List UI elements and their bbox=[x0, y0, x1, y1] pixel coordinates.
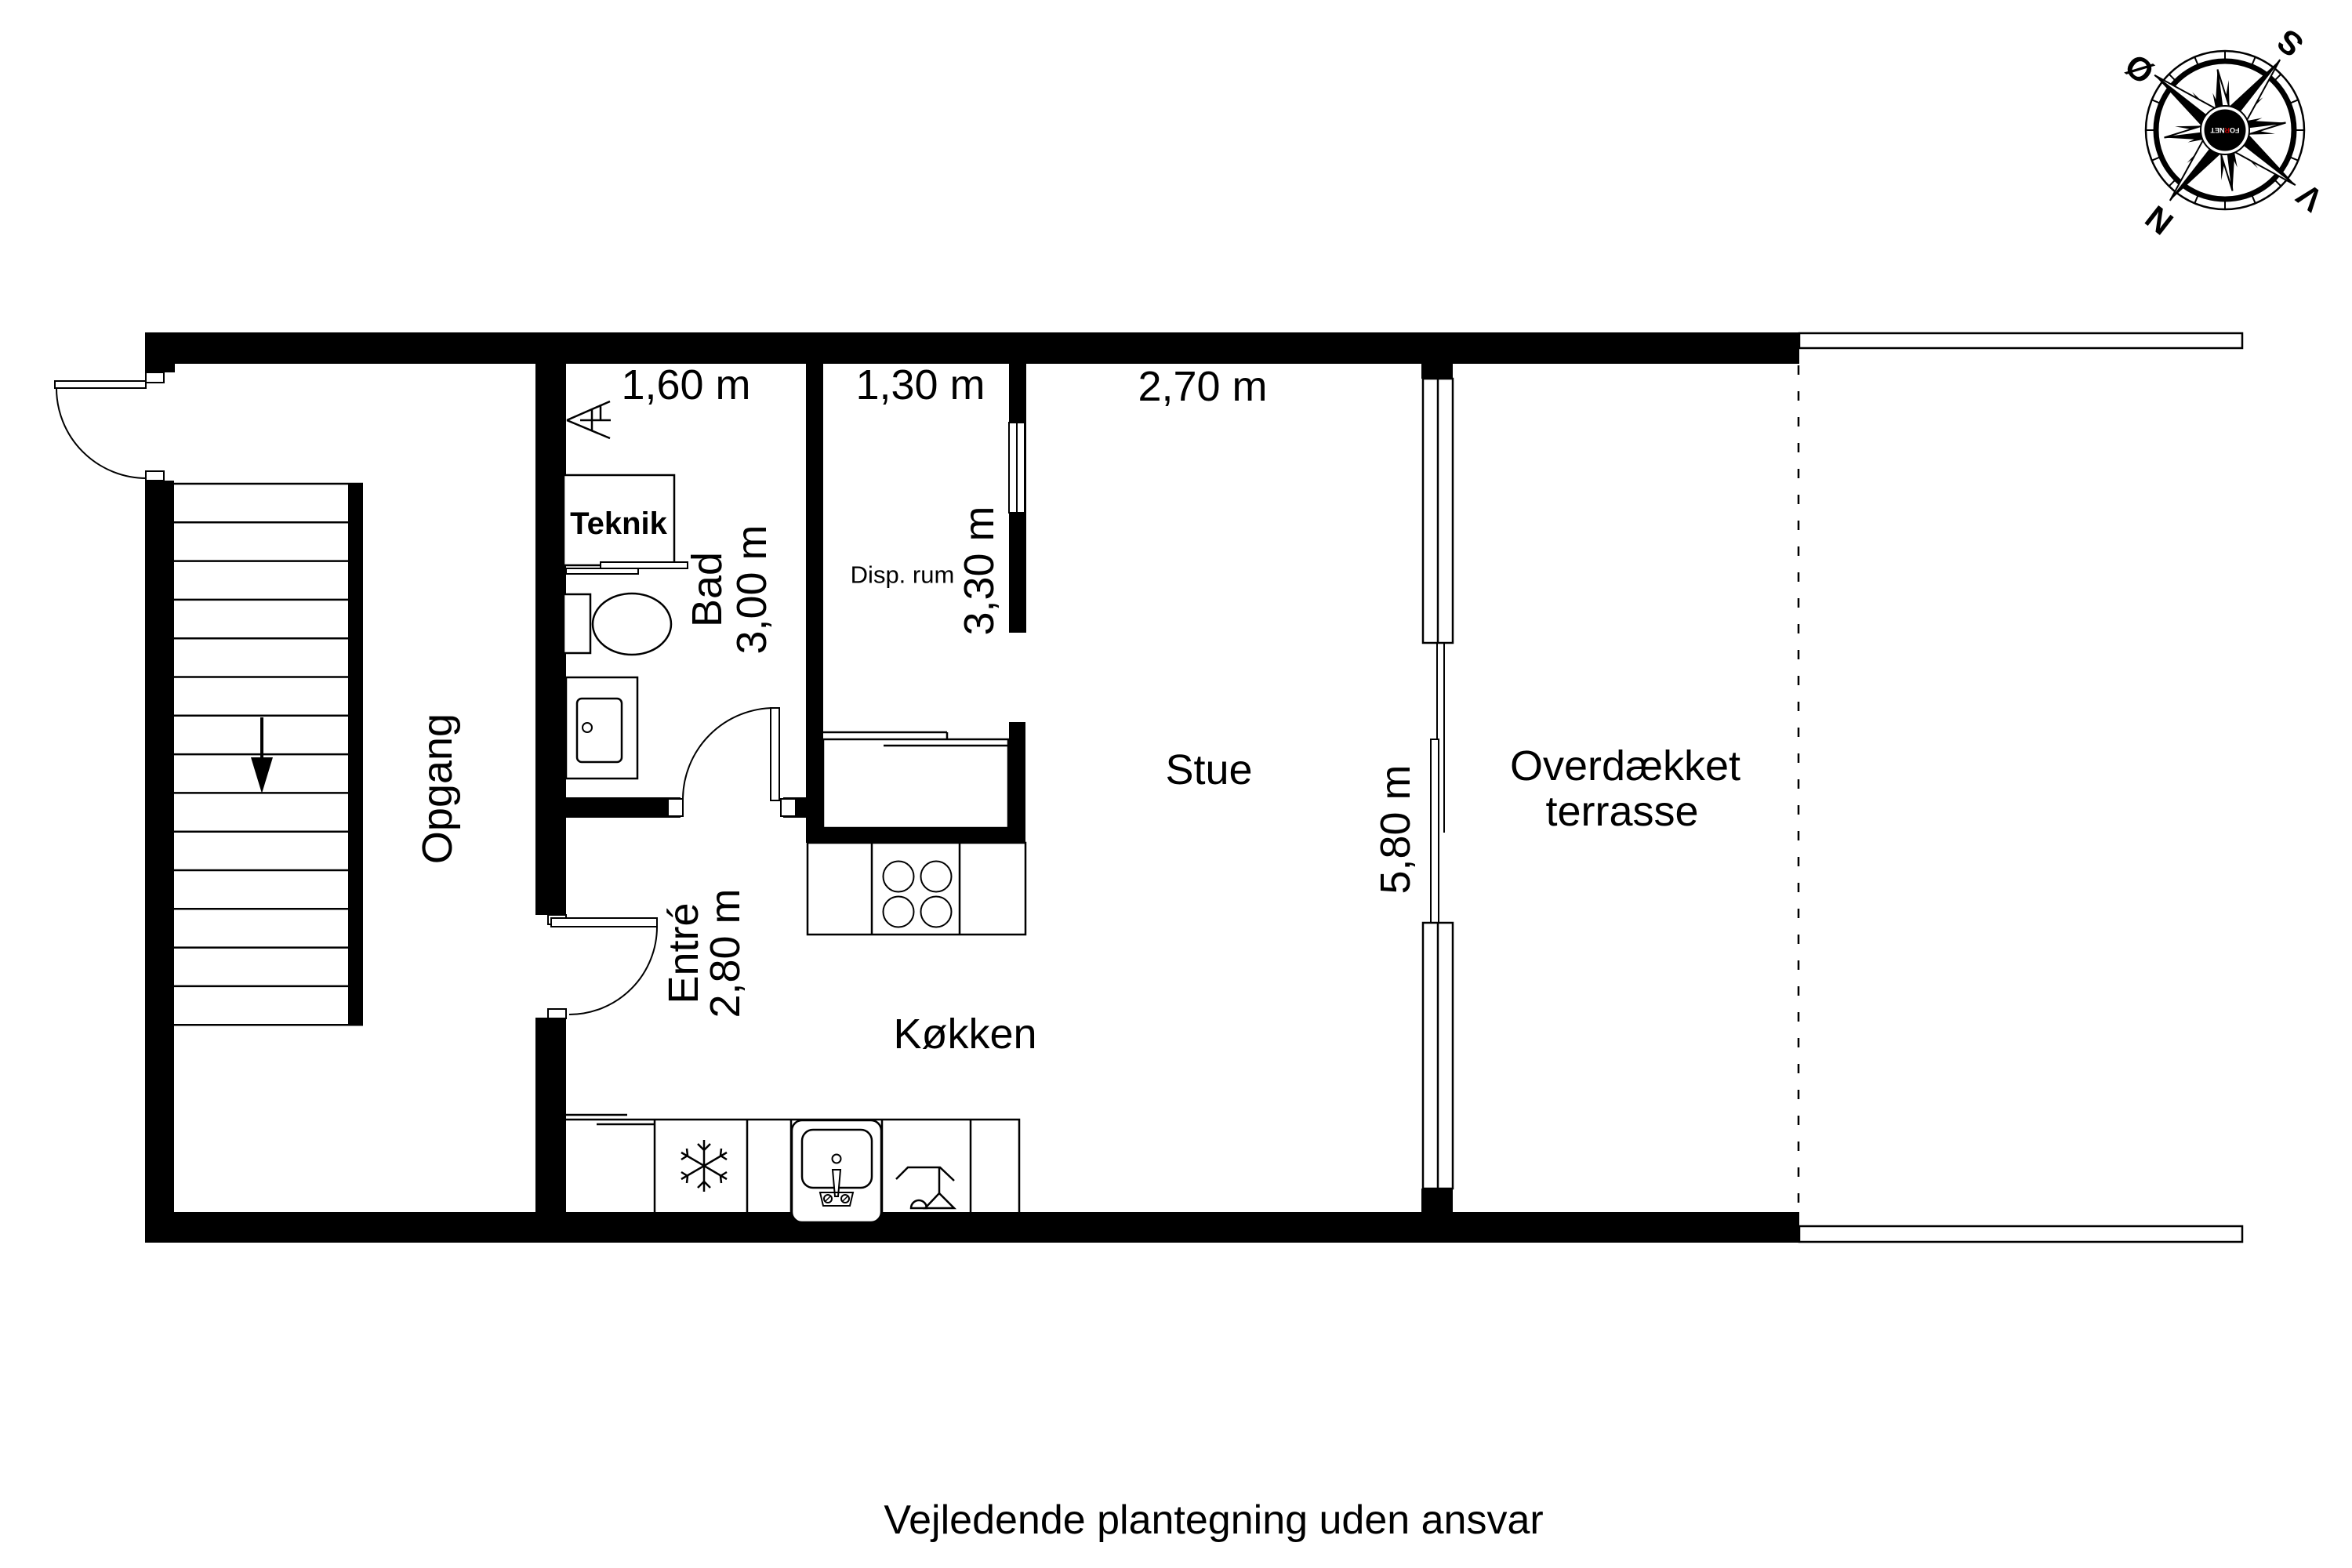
svg-text:1,30 m: 1,30 m bbox=[855, 361, 985, 408]
svg-text:Overdækket: Overdækket bbox=[1510, 742, 1740, 789]
svg-text:Vejledende plantegning uden an: Vejledende plantegning uden ansvar bbox=[884, 1497, 1543, 1543]
svg-text:2,80 m: 2,80 m bbox=[702, 888, 749, 1018]
svg-text:5,80 m: 5,80 m bbox=[1372, 764, 1419, 894]
svg-text:3,30 m: 3,30 m bbox=[956, 506, 1003, 635]
svg-text:Køkken: Køkken bbox=[893, 1011, 1036, 1058]
svg-text:Entré: Entré bbox=[660, 902, 707, 1004]
svg-text:terrasse: terrasse bbox=[1545, 788, 1698, 835]
svg-text:Bad: Bad bbox=[684, 552, 731, 627]
svg-text:Stue: Stue bbox=[1165, 746, 1252, 793]
svg-text:Teknik: Teknik bbox=[570, 506, 668, 541]
svg-text:2,70 m: 2,70 m bbox=[1138, 363, 1267, 410]
svg-text:Disp. rum: Disp. rum bbox=[851, 561, 955, 589]
svg-text:3,00 m: 3,00 m bbox=[728, 524, 775, 654]
svg-text:Opgang: Opgang bbox=[414, 713, 461, 864]
svg-text:1,60 m: 1,60 m bbox=[621, 361, 750, 408]
svg-text:FORNET: FORNET bbox=[2210, 126, 2240, 134]
